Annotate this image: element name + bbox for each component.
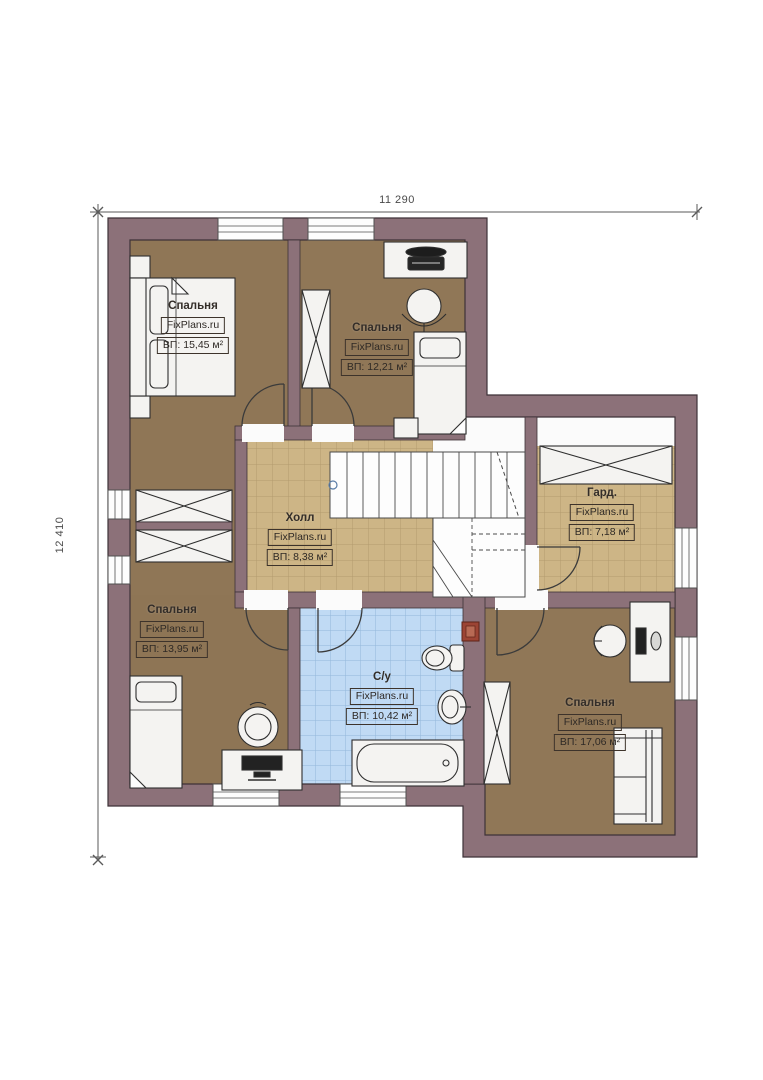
room-label-bedroom-3: Спальня FixPlans.ru ВП: 13,95 м² (136, 604, 208, 658)
bathtub-icon (352, 740, 464, 786)
brand-badge: FixPlans.ru (558, 714, 623, 731)
closet-icon (136, 530, 232, 562)
room-area: ВП: 15,45 м² (157, 337, 229, 354)
door-opening (242, 424, 284, 442)
window-icon (340, 784, 406, 806)
room-name: Гард. (587, 487, 617, 499)
room-name: Спальня (565, 697, 615, 709)
room-label-bathroom: С/у FixPlans.ru ВП: 10,42 м² (346, 671, 418, 725)
closet-divider-wall (136, 522, 232, 530)
wall-bathroom-right (463, 592, 485, 784)
door-opening (316, 590, 362, 610)
room-area: ВП: 8,38 м² (267, 549, 333, 566)
wall-hall-left (235, 440, 247, 592)
window-icon (308, 218, 374, 240)
room-label-bedroom-4: Спальня FixPlans.ru ВП: 17,06 м² (554, 697, 626, 751)
desk-icon (630, 602, 670, 682)
window-icon (108, 556, 130, 584)
vent-shaft (462, 622, 479, 641)
brand-badge: FixPlans.ru (140, 621, 205, 638)
room-area: ВП: 12,21 м² (341, 359, 413, 376)
window-icon (675, 528, 697, 588)
desk-icon (384, 242, 467, 278)
brand-badge: FixPlans.ru (570, 504, 635, 521)
room-label-bedroom-2: Спальня FixPlans.ru ВП: 12,21 м² (341, 322, 413, 376)
room-area: ВП: 17,06 м² (554, 734, 626, 751)
room-name: С/у (373, 671, 391, 683)
door-opening (244, 590, 288, 610)
room-area: ВП: 13,95 м² (136, 641, 208, 658)
wardrobe-icon (540, 446, 672, 484)
floor-plan: 11 290 12 410 Спальня FixPlans.ru ВП: 15… (0, 0, 763, 1080)
window-icon (108, 490, 130, 519)
room-label-hall: Холл FixPlans.ru ВП: 8,38 м² (267, 512, 333, 566)
floor-plan-drawing (0, 0, 763, 1080)
room-name: Спальня (147, 604, 197, 616)
room-name: Холл (286, 512, 315, 524)
wall-bedroom1-bedroom2 (288, 240, 300, 428)
brand-badge: FixPlans.ru (350, 688, 415, 705)
toilet-icon (422, 645, 464, 671)
dimension-width-label: 11 290 (379, 194, 415, 206)
computer-desk-icon (222, 750, 302, 790)
room-label-bedroom-1: Спальня FixPlans.ru ВП: 15,45 м² (157, 300, 229, 354)
door-opening (312, 424, 354, 442)
closet-icon (136, 490, 232, 522)
office-chair-icon (594, 625, 626, 657)
wardrobe-icon (302, 290, 330, 388)
room-name: Спальня (352, 322, 402, 334)
wardrobe-icon (484, 682, 510, 784)
single-bed-icon (130, 676, 182, 788)
brand-badge: FixPlans.ru (345, 339, 410, 356)
brand-badge: FixPlans.ru (268, 529, 333, 546)
dimension-height-label: 12 410 (54, 517, 66, 554)
single-bed-icon (414, 332, 466, 434)
room-area: ВП: 10,42 м² (346, 708, 418, 725)
window-icon (218, 218, 283, 240)
room-label-wardrobe: Гард. FixPlans.ru ВП: 7,18 м² (569, 487, 635, 541)
room-name: Спальня (168, 300, 218, 312)
window-icon (675, 637, 697, 700)
nightstand-icon (394, 418, 418, 438)
room-area: ВП: 7,18 м² (569, 524, 635, 541)
brand-badge: FixPlans.ru (161, 317, 226, 334)
